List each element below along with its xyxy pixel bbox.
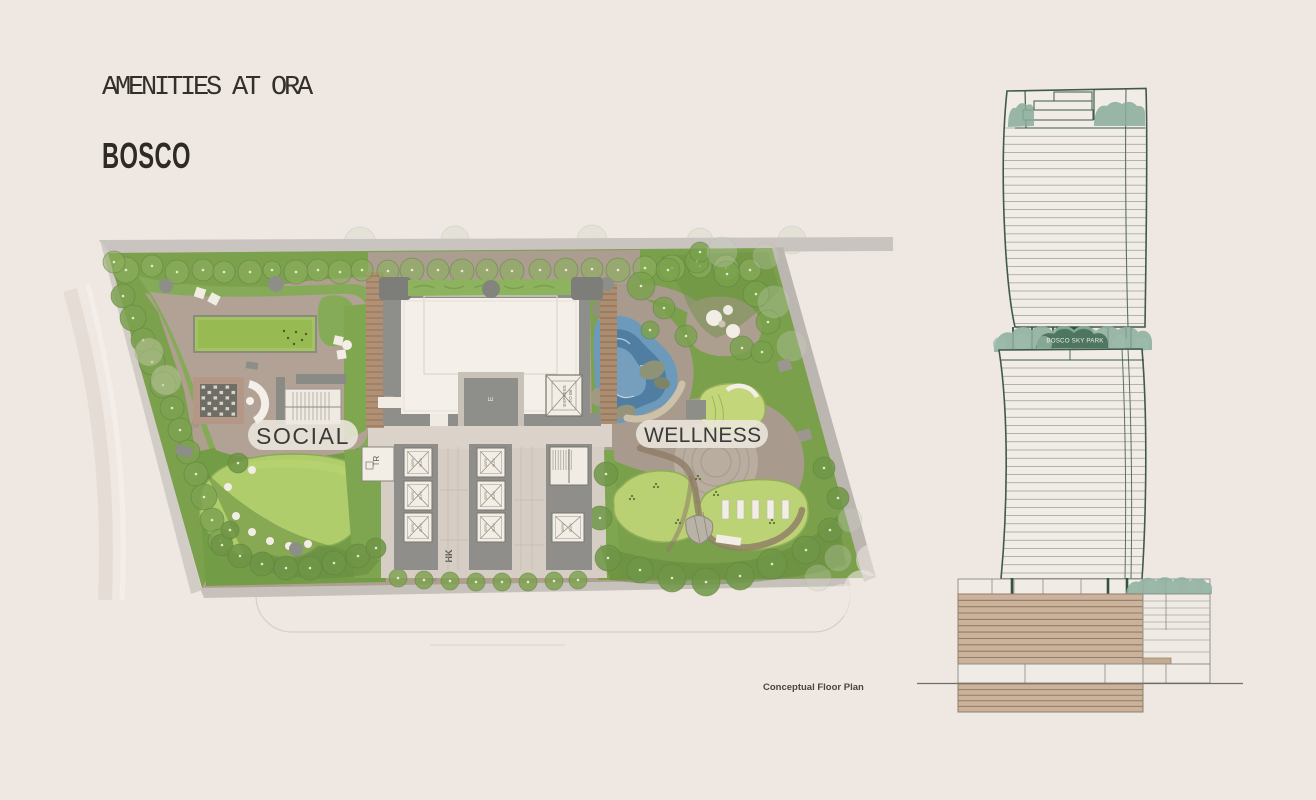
svg-text:ELEV: ELEV xyxy=(419,523,423,532)
svg-text:AMENITIES AT ORA: AMENITIES AT ORA xyxy=(102,73,314,103)
svg-text:TO B6: TO B6 xyxy=(568,389,573,402)
svg-text:SOCIAL: SOCIAL xyxy=(256,423,350,449)
svg-text:SERV: SERV xyxy=(484,490,488,499)
svg-text:BOSCO SKY PARK: BOSCO SKY PARK xyxy=(1046,338,1104,345)
svg-text:SERV: SERV xyxy=(411,457,415,466)
svg-text:WELLNESS: WELLNESS xyxy=(644,424,762,447)
svg-text:ELEV: ELEV xyxy=(492,491,496,500)
svg-text:E: E xyxy=(488,396,495,401)
svg-text:ELEV: ELEV xyxy=(569,523,573,532)
svg-text:SERV: SERV xyxy=(484,522,488,531)
svg-text:BOSCO: BOSCO xyxy=(102,136,191,176)
svg-text:EXPRESS: EXPRESS xyxy=(562,385,567,406)
svg-text:ELEV: ELEV xyxy=(492,523,496,532)
svg-text:HK: HK xyxy=(444,549,454,562)
svg-text:ELEV: ELEV xyxy=(419,491,423,500)
svg-text:ELEV: ELEV xyxy=(419,458,423,467)
svg-text:Conceptual Floor Plan: Conceptual Floor Plan xyxy=(763,682,864,693)
svg-text:SERV: SERV xyxy=(561,522,565,531)
svg-text:SERV: SERV xyxy=(411,490,415,499)
svg-text:SERV: SERV xyxy=(484,457,488,466)
svg-text:ELEV: ELEV xyxy=(492,458,496,467)
svg-text:SERV: SERV xyxy=(411,522,415,531)
